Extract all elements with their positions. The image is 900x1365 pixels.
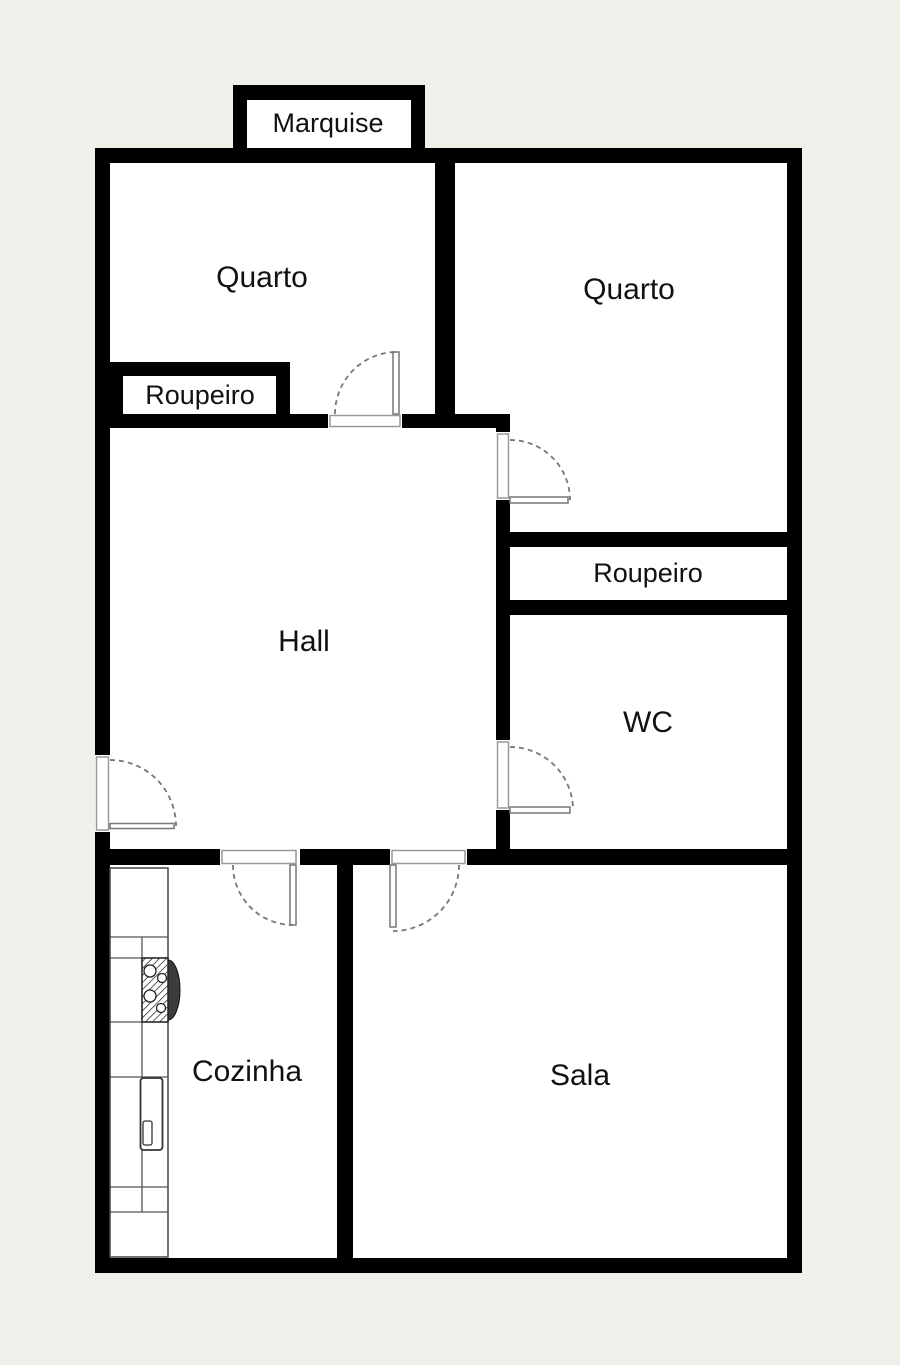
label-sala: Sala bbox=[550, 1059, 610, 1092]
door-leaf-quarto-left bbox=[393, 352, 399, 414]
wall-right bbox=[787, 148, 802, 1273]
wall-roupeiro-right-top bbox=[503, 532, 787, 547]
wall-hall-top-right bbox=[402, 414, 510, 428]
door-threshold-cozinha bbox=[222, 851, 296, 864]
floor-plan-image: Marquise Quarto Quarto Roupeiro Hall Rou… bbox=[0, 0, 900, 1365]
kitchen-counter bbox=[110, 868, 168, 1257]
label-roupeiro-right: Roupeiro bbox=[593, 558, 703, 588]
label-quarto-right: Quarto bbox=[583, 273, 675, 306]
wall-hall-top-left bbox=[110, 414, 328, 428]
door-threshold-entry bbox=[97, 757, 109, 830]
label-hall: Hall bbox=[278, 625, 330, 658]
wall-cozinha-sala-divider bbox=[337, 865, 353, 1258]
door-threshold-quarto-left bbox=[330, 416, 400, 427]
door-leaf-entry bbox=[110, 824, 174, 829]
door-leaf-cozinha bbox=[290, 865, 296, 925]
door-threshold-wc bbox=[498, 742, 509, 808]
door-leaf-wc bbox=[510, 807, 570, 813]
wall-quarto-divider bbox=[435, 163, 455, 415]
label-marquise: Marquise bbox=[272, 108, 383, 138]
wall-left-lower bbox=[95, 832, 110, 1273]
wall-roupeiro-left-top bbox=[108, 362, 290, 376]
door-leaf-sala bbox=[390, 865, 396, 927]
floor-plan-drawing: Marquise Quarto Quarto Roupeiro Hall Rou… bbox=[0, 0, 900, 1365]
wall-top bbox=[95, 148, 802, 163]
door-threshold-quarto-right bbox=[498, 434, 509, 498]
label-wc: WC bbox=[623, 706, 673, 739]
wall-wc-bottom bbox=[467, 849, 787, 865]
wall-hall-bottom-a bbox=[110, 849, 220, 865]
label-roupeiro-left: Roupeiro bbox=[145, 380, 255, 410]
door-threshold-sala bbox=[392, 851, 465, 864]
wall-roupeiro-right-bottom bbox=[503, 600, 787, 615]
wall-bottom bbox=[95, 1258, 802, 1273]
wall-hall-bottom-b bbox=[300, 849, 390, 865]
door-leaf-quarto-right bbox=[510, 497, 568, 503]
wall-hall-right-stub bbox=[496, 428, 510, 432]
sink-faucet bbox=[143, 1121, 152, 1145]
wall-roupeiro-left-side-b bbox=[276, 362, 290, 428]
label-cozinha: Cozinha bbox=[192, 1055, 302, 1088]
label-quarto-left: Quarto bbox=[216, 261, 308, 294]
wall-left-upper bbox=[95, 148, 110, 755]
wall-roupeiro-left-side-a bbox=[108, 362, 123, 428]
